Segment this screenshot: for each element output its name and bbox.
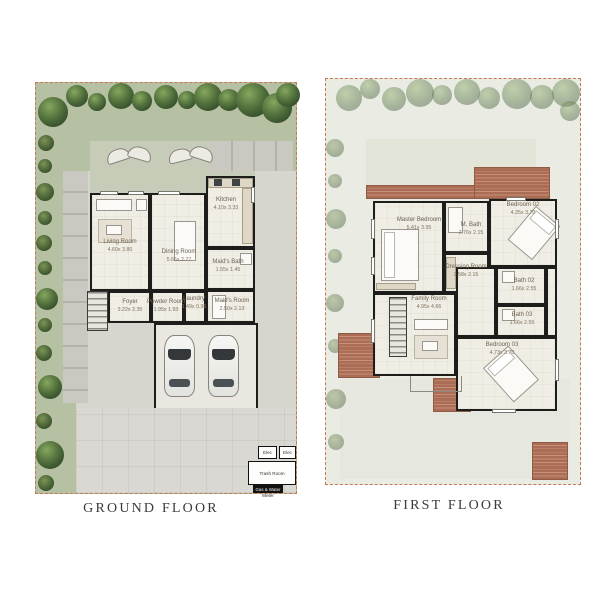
room-label-maids-bath: Maid's Bath 1.55x 1.45 (212, 259, 243, 273)
room-name: Foyer (118, 299, 143, 307)
shrub (326, 389, 346, 409)
room-dims: 2.50x 2.13 (215, 305, 250, 312)
entrance-porch (410, 376, 462, 392)
room-label-powder: Powder Room 1.95x 1.93 (147, 299, 185, 313)
terrace-deck (474, 167, 550, 199)
room-name: Living Room (103, 239, 136, 247)
tree (360, 79, 380, 99)
meter-label-line1: Gas & Water (256, 487, 281, 492)
room-dims: 2.76x 2.15 (459, 229, 484, 236)
room-label-bath-02: Bath 02 1.66x 2.55 (512, 278, 537, 292)
shrub (38, 475, 54, 491)
elec-label: Elec (263, 450, 272, 455)
tree (276, 83, 300, 107)
room-dims: 3.22x 2.35 (118, 306, 143, 313)
window (555, 219, 559, 239)
room-label-living: Living Room 4.60x 3.80 (103, 239, 136, 253)
shrub (36, 345, 52, 361)
tree (38, 97, 68, 127)
bed (381, 229, 419, 281)
room-name: Family Room (411, 296, 446, 304)
coffee-table (106, 225, 122, 235)
trash-room-label: Trash Room (259, 471, 284, 476)
shrub (36, 183, 54, 201)
tree (132, 91, 152, 111)
room-dims: 4.60x 3.80 (103, 246, 136, 253)
sofa (414, 319, 448, 330)
window (555, 359, 559, 381)
sink (232, 179, 240, 186)
terrace-deck (532, 442, 568, 480)
hob (214, 179, 222, 186)
shrub (36, 413, 52, 429)
tree (336, 85, 362, 111)
staircase (389, 297, 407, 357)
car (164, 335, 195, 397)
staircase (87, 291, 108, 331)
room-dims: 1.66x 2.55 (512, 285, 537, 292)
floorplan-sheet: Elec Elec Trash Room Gas & Water Meter L… (0, 0, 600, 600)
window (492, 409, 516, 413)
meter-label-line2: Meter (253, 493, 283, 498)
tree (108, 83, 134, 109)
elec-label: Elec (283, 450, 292, 455)
tree (560, 101, 580, 121)
room-label-kitchen: Kitchen 4.10x 3.33 (214, 197, 239, 211)
shrub (38, 135, 54, 151)
room-dims: 5.66x 2.77 (162, 256, 197, 263)
room-name: Bedroom 03 (486, 342, 519, 350)
room-dims: 4.73x 3.70 (486, 349, 519, 356)
room-name: Master Bedroom (397, 217, 441, 225)
room-dims: 4.95x 4.66 (411, 303, 446, 310)
tree (154, 85, 178, 109)
room-label-dressing: Dressing Room 2.58x 2.15 (445, 264, 486, 278)
room-name: Maid's Bath (212, 259, 243, 267)
room-name: Bedroom 02 (507, 202, 540, 210)
shrub (326, 294, 344, 312)
tree (502, 79, 532, 109)
tree (382, 87, 406, 111)
shrub (38, 159, 52, 173)
room-label-dining: Dining Room 5.66x 2.77 (162, 249, 197, 263)
shrub (328, 434, 344, 450)
room-label-maids-room: Maid's Room 2.50x 2.13 (215, 298, 250, 312)
shrub (326, 139, 344, 157)
room-name: Powder Room (147, 299, 185, 307)
ground-floor-title: GROUND FLOOR (51, 501, 251, 517)
room-name: Laundry (182, 296, 207, 304)
gas-water-meter: Gas & Water (253, 485, 283, 493)
window (371, 319, 375, 343)
elec-room: Elec (279, 446, 296, 459)
tree (406, 79, 434, 107)
shrub (326, 209, 346, 229)
room-closet (546, 267, 557, 337)
room-label-bath-03: Bath 03 1.66x 2.55 (510, 312, 535, 326)
room-name: Maid's Room (215, 298, 250, 306)
room-dims: 2.58x 2.15 (445, 271, 486, 278)
room-name: Dining Room (162, 249, 197, 257)
room-name: Dressing Room (445, 264, 486, 272)
shrub (38, 261, 52, 275)
tree (88, 93, 106, 111)
room-label-master-bedroom: Master Bedroom 5.41x 3.95 (397, 217, 441, 231)
tree (432, 85, 452, 105)
window (371, 257, 375, 275)
room-dims: 1.55x 1.45 (212, 266, 243, 273)
window (128, 191, 144, 195)
paver-row (211, 141, 293, 171)
shrub (328, 174, 342, 188)
ground-floor-plan: Elec Elec Trash Room Gas & Water Meter L… (35, 82, 297, 494)
tree (36, 441, 64, 469)
room-name: M. Bath (459, 222, 484, 230)
room-dims: 4.35x 3.70 (507, 209, 540, 216)
shrub (38, 318, 52, 332)
room-name: Bath 02 (512, 278, 537, 286)
tree (66, 85, 88, 107)
tree (36, 288, 58, 310)
room-label-family: Family Room 4.95x 4.66 (411, 296, 446, 310)
elec-room: Elec (258, 446, 277, 459)
room-name: Kitchen (214, 197, 239, 205)
tree (478, 87, 500, 109)
room-label-laundry: Laundry 1.49x 0.95 (182, 296, 207, 310)
window (100, 191, 118, 195)
shrub (38, 211, 52, 225)
terrace-deck (366, 185, 476, 199)
room-dims: 1.95x 1.93 (147, 306, 185, 313)
room-name: Bath 03 (510, 312, 535, 320)
first-floor-plan: Master Bedroom 5.41x 3.95 M. Bath 2.76x … (325, 78, 581, 485)
window (371, 219, 375, 239)
room-dims: 1.66x 2.55 (510, 319, 535, 326)
sofa (96, 199, 132, 211)
window (506, 197, 526, 201)
room-label-bedroom-02: Bedroom 02 4.35x 3.70 (507, 202, 540, 216)
window (158, 191, 180, 195)
room-dims: 5.41x 3.95 (397, 224, 441, 231)
coffee-table (422, 341, 438, 351)
room-dims: 4.10x 3.33 (214, 204, 239, 211)
tree (38, 375, 62, 399)
window (251, 187, 255, 203)
tree (454, 79, 480, 105)
shrub (328, 249, 342, 263)
room-label-master-bath: M. Bath 2.76x 2.15 (459, 222, 484, 236)
room-label-bedroom-03: Bedroom 03 4.73x 3.70 (486, 342, 519, 356)
room-label-foyer: Foyer 3.22x 2.35 (118, 299, 143, 313)
wardrobe (376, 283, 416, 290)
paver-path (63, 171, 88, 403)
room-dims: 1.49x 0.95 (182, 303, 207, 310)
shrub (36, 235, 52, 251)
tree (530, 85, 554, 109)
car (208, 335, 239, 397)
armchair (136, 199, 147, 211)
trash-room: Trash Room (248, 461, 296, 485)
first-floor-title: FIRST FLOOR (349, 498, 549, 514)
